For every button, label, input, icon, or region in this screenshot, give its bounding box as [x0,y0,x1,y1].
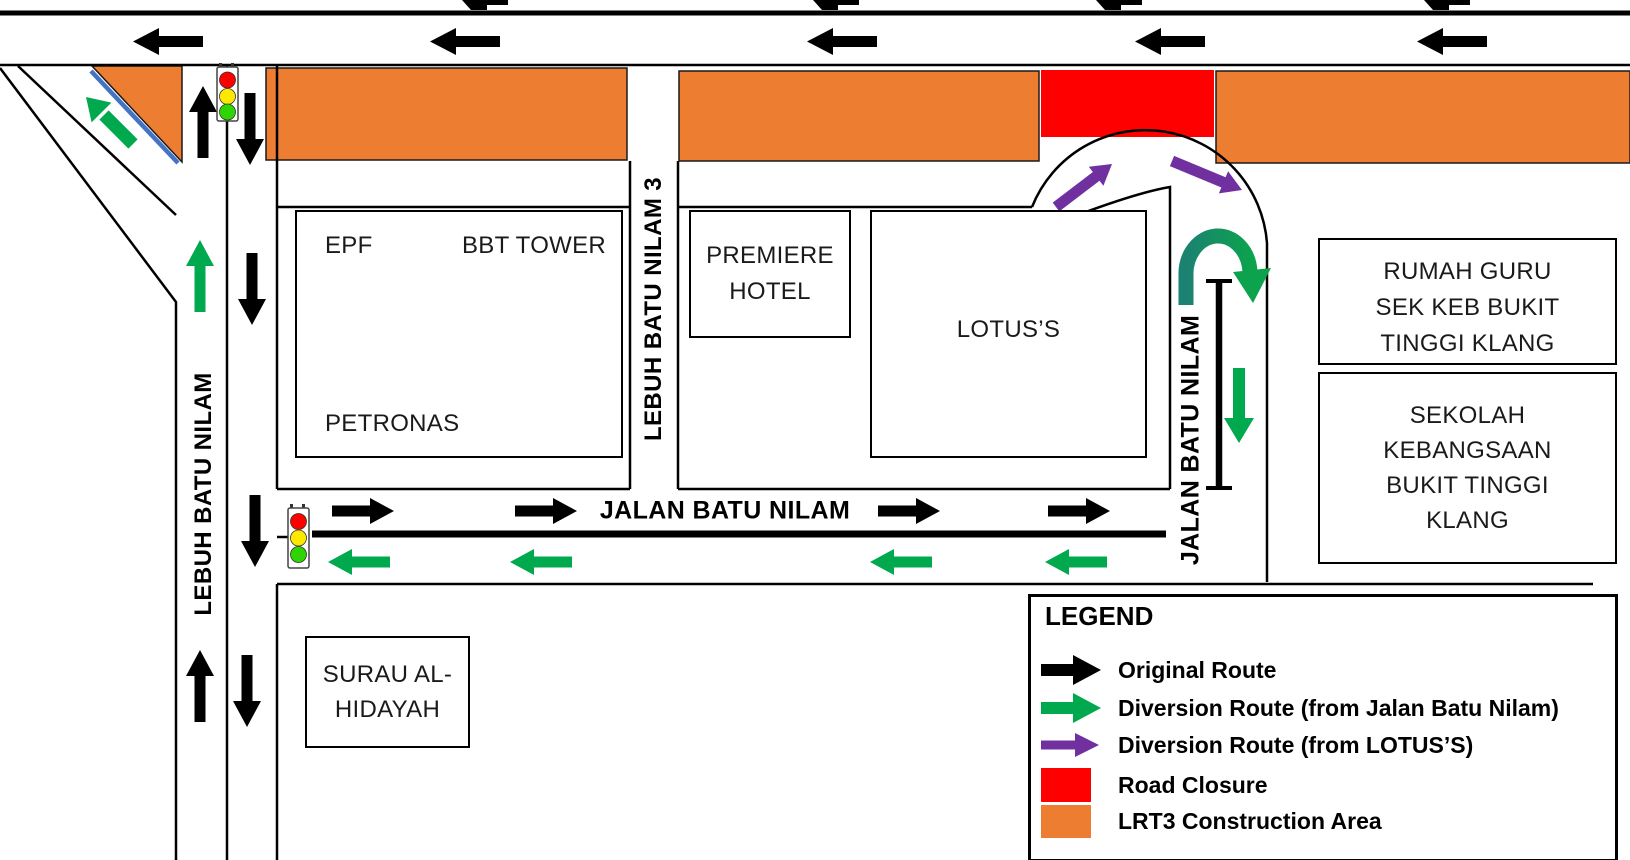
construction-areas [91,66,1630,163]
green-west-arrow-icon [510,549,572,575]
lrt3-strip-east [1216,71,1630,163]
building-label: PETRONAS [325,410,459,438]
black-arrow-icon [1041,655,1101,685]
legend-item-original-route: Original Route [1041,655,1276,685]
building-label: BBT TOWER [462,232,606,260]
building-label: HIDAYAH [335,692,440,727]
west-arrow-icon [1135,28,1205,55]
legend-item-diversion-lotus: Diversion Route (from LOTUS’S) [1041,730,1473,760]
legend-title: LEGEND [1045,601,1153,632]
south-arrow-icon [241,495,269,567]
building-label: KLANG [1426,503,1509,538]
traffic-light-north [217,63,238,121]
north-arrow-icon [189,86,217,158]
south-arrow-icon [236,93,264,165]
legend-label: Original Route [1118,657,1276,684]
uturn-arrow-icon [1186,236,1271,305]
building-label: HOTEL [729,274,811,310]
legend-label: Road Closure [1118,772,1268,799]
building-label: TINGGI KLANG [1380,326,1554,362]
legend-label: Diversion Route (from LOTUS’S) [1118,732,1473,759]
building-label: EPF [325,232,373,260]
legend-item-lrt3-construction: LRT3 Construction Area [1041,805,1382,838]
clipped-arrow-icon [1424,0,1470,10]
clipped-arrow-icon [1096,0,1142,10]
purple-northeast-arrow-icon [1056,164,1112,207]
building-lotus: LOTUS’S [870,210,1147,458]
red-square-icon [1041,768,1101,802]
road-label-jalan-batu-nilam: JALAN BATU NILAM [600,497,850,526]
south-arrow-icon [238,253,266,325]
west-arrow-icon [133,28,203,55]
traffic-light-south [288,504,309,568]
clipped-arrow-icon [813,0,859,10]
road-closure-block [1041,70,1214,137]
west-arrow-icon [430,28,500,55]
building-epf-bbt-petronas: EPF BBT TOWER PETRONAS [295,210,623,458]
road-label-lebuh-batu-nilam: LEBUH BATU NILAM [190,372,218,615]
diversion-lotus-arrows [1056,161,1242,207]
green-north-arrow-icon [186,240,214,312]
east-arrow-icon [515,498,577,524]
vertical-median-line [1206,281,1232,488]
building-label: PREMIERE [706,238,834,274]
legend: LEGEND Original Route Diversion Route (f… [1028,594,1618,860]
traffic-diversion-map: EPF BBT TOWER PETRONAS PREMIERE HOTEL LO… [0,0,1630,860]
building-premiere-hotel: PREMIERE HOTEL [689,210,851,338]
green-south-arrow-icon [1224,368,1254,443]
building-label: LOTUS’S [957,312,1060,348]
green-west-arrow-icon [328,549,390,575]
lrt3-strip-west [266,68,627,160]
clipped-arrow-icon [462,0,508,10]
building-surau: SURAU AL- HIDAYAH [305,636,470,748]
north-arrow-icon [186,650,214,722]
building-label: RUMAH GURU [1383,254,1551,290]
east-arrow-icon [878,498,940,524]
building-label: KEBANGSAAN [1383,433,1551,468]
orange-square-icon [1041,805,1101,838]
east-arrow-icon [1048,498,1110,524]
west-arrow-icon [1417,28,1487,55]
building-label: BUKIT TINGGI [1386,468,1549,503]
road-label-lebuh-batu-nilam-3: LEBUH BATU NILAM 3 [640,177,668,441]
purple-arrow-icon [1041,730,1101,760]
legend-item-diversion-jalan: Diversion Route (from Jalan Batu Nilam) [1041,693,1559,723]
green-arrow-icon [1041,693,1101,723]
legend-label: Diversion Route (from Jalan Batu Nilam) [1118,695,1559,722]
road-label-jalan-batu-nilam-vertical: JALAN BATU NILAM [1177,315,1206,565]
building-label: SURAU AL- [323,657,452,692]
green-west-arrow-icon [1045,549,1107,575]
lebuh-left-edge [0,68,176,860]
building-label: SEK KEB BUKIT [1376,290,1560,326]
building-label: SEKOLAH [1410,398,1525,433]
south-arrow-icon [233,655,261,727]
lrt3-strip-center [679,71,1039,161]
west-arrow-icon [807,28,877,55]
legend-label: LRT3 Construction Area [1118,808,1382,835]
east-arrow-icon [332,498,394,524]
legend-item-road-closure: Road Closure [1041,768,1268,802]
building-sekolah: SEKOLAH KEBANGSAAN BUKIT TINGGI KLANG [1318,372,1617,564]
green-west-arrow-icon [870,549,932,575]
building-rumah-guru: RUMAH GURU SEK KEB BUKIT TINGGI KLANG [1318,238,1617,365]
